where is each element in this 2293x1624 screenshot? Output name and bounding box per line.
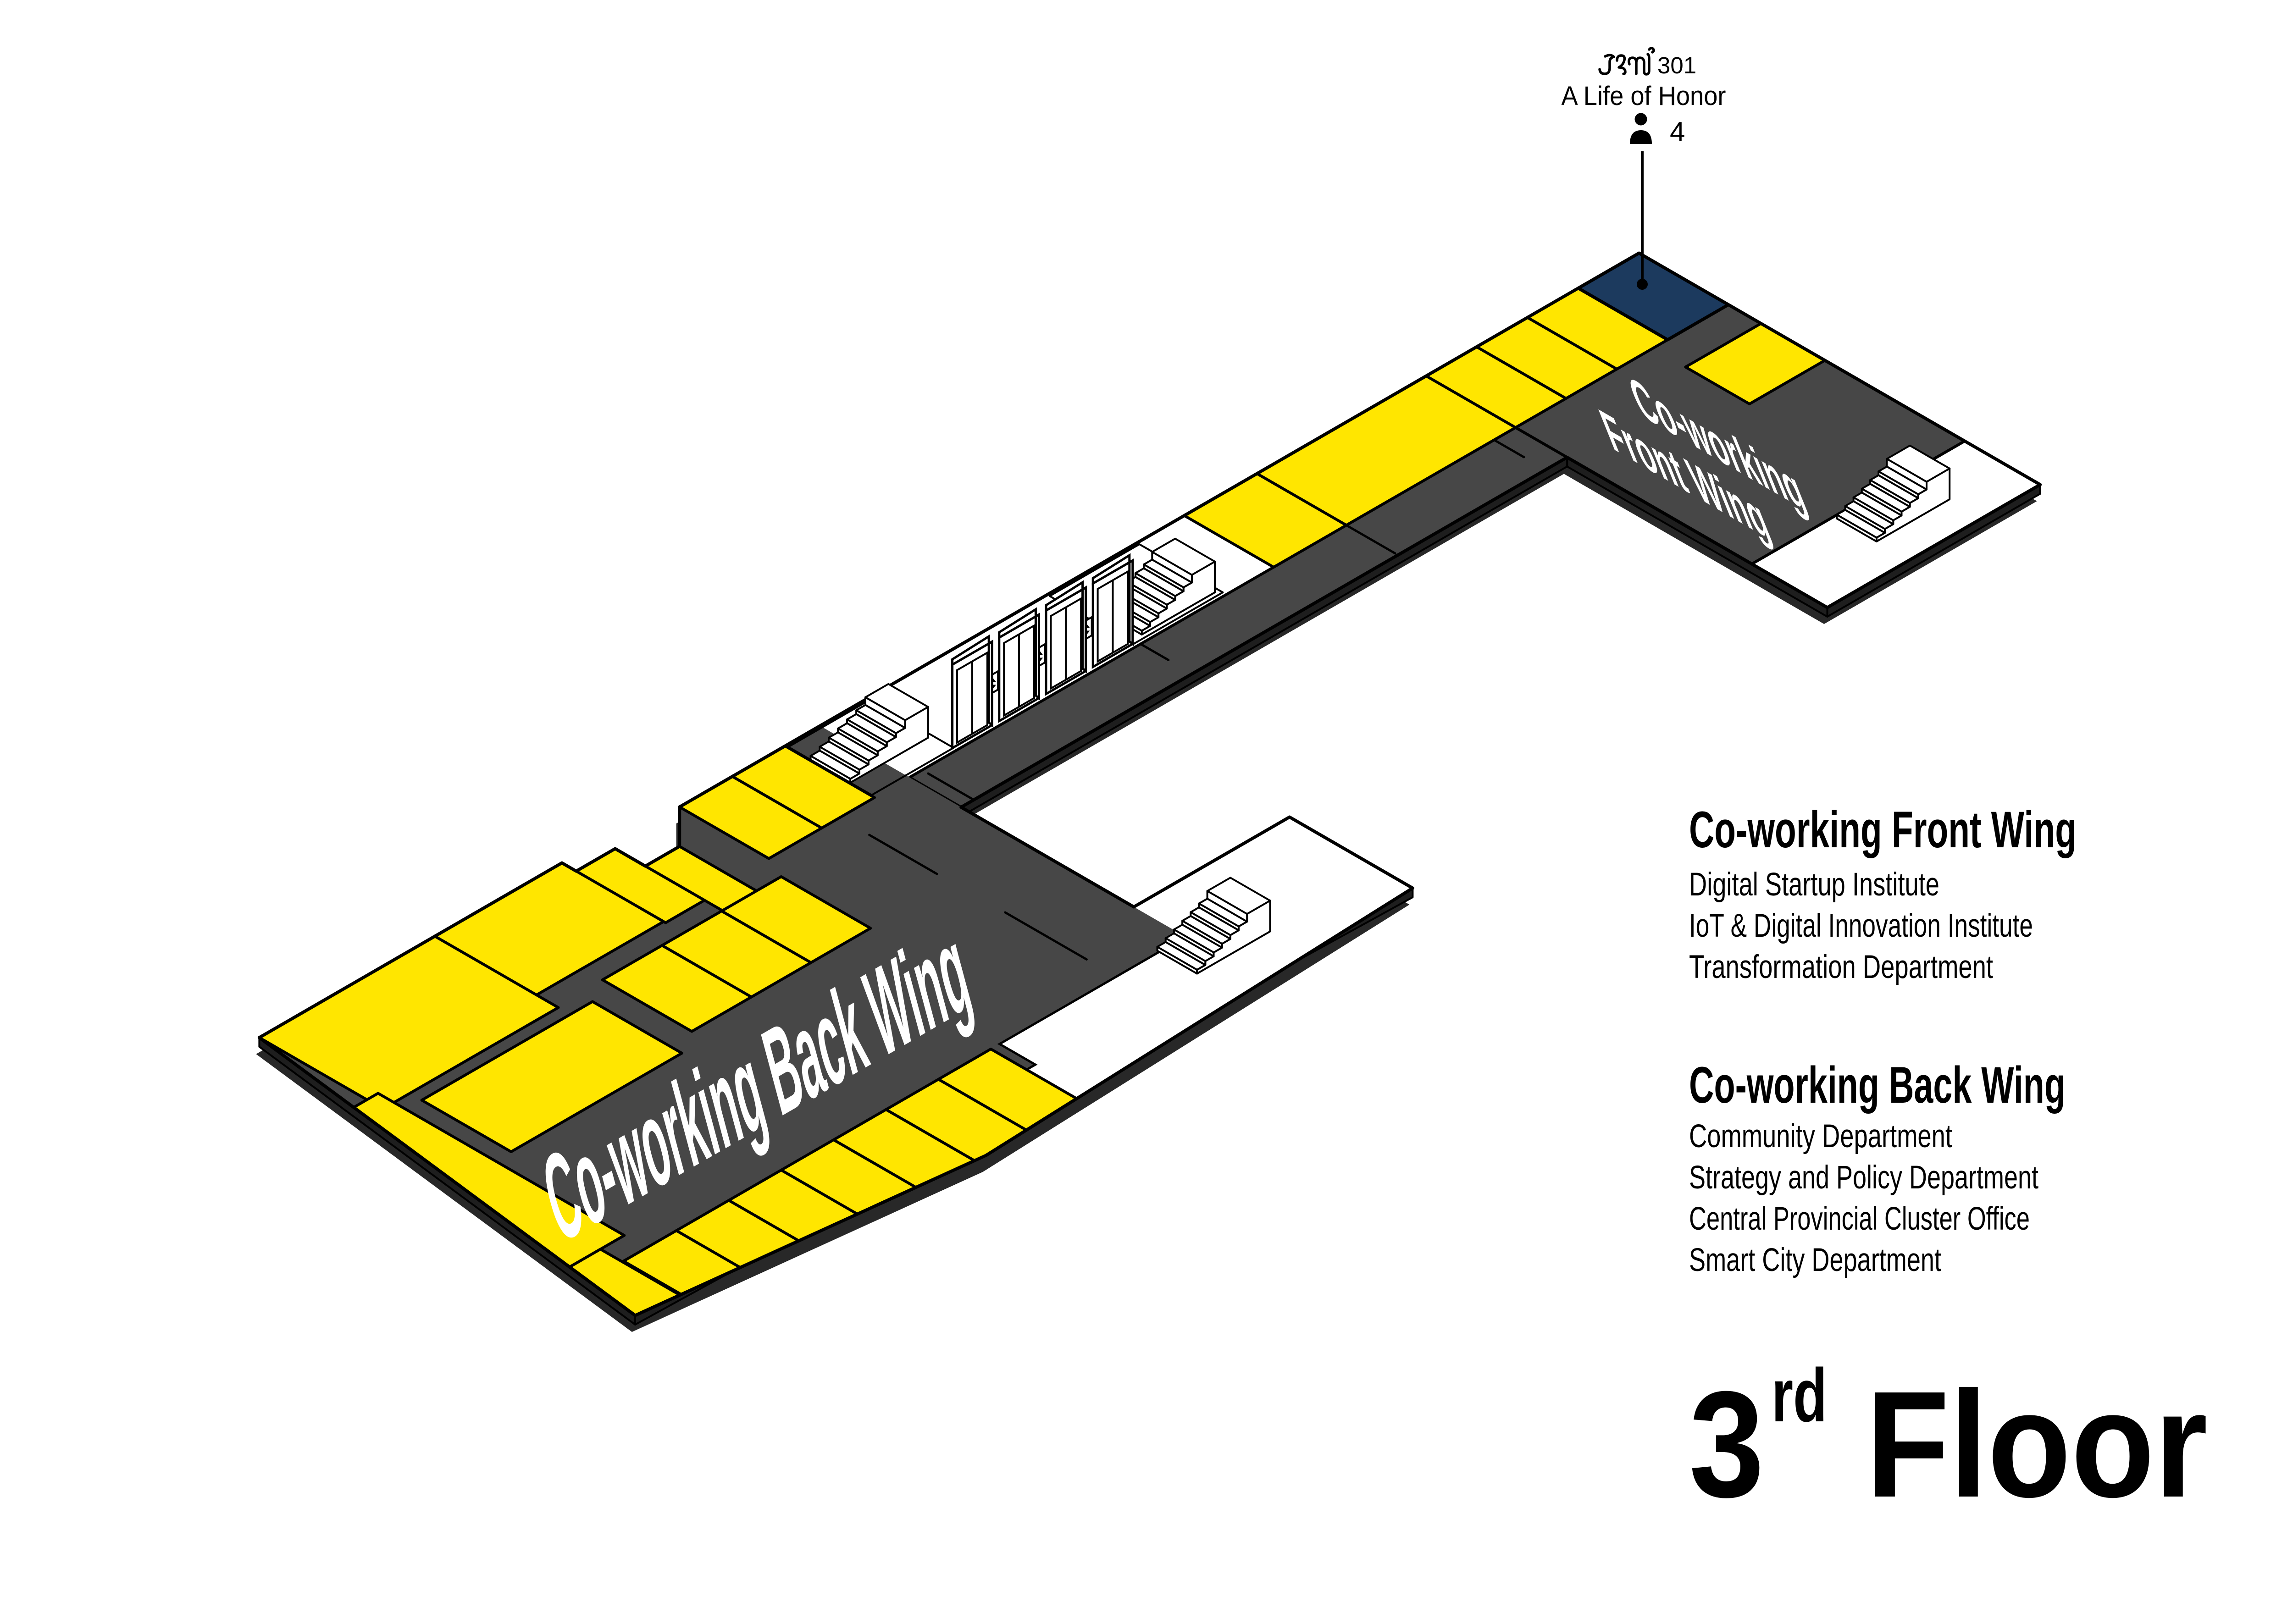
- svg-text:Community Department: Community Department: [1689, 1118, 1952, 1154]
- svg-text:Co-working Back Wing: Co-working Back Wing: [1689, 1056, 2066, 1114]
- svg-text:Strategy and Policy Department: Strategy and Policy Department: [1689, 1160, 2038, 1196]
- svg-text:3: 3: [1689, 1359, 1764, 1529]
- svg-text:rd: rd: [1772, 1353, 1827, 1437]
- svg-text:Central Provincial Cluster Off: Central Provincial Cluster Office: [1689, 1201, 2030, 1237]
- svg-text:A Life of Honor: A Life of Honor: [1562, 81, 1726, 111]
- svg-text:301: 301: [1657, 52, 1696, 78]
- svg-text:4: 4: [1670, 116, 1685, 147]
- svg-text:IoT & Digital Innovation Insti: IoT & Digital Innovation Institute: [1689, 908, 2033, 944]
- svg-text:Digital Startup Institute: Digital Startup Institute: [1689, 867, 1939, 903]
- svg-text:Transformation Department: Transformation Department: [1689, 949, 1993, 985]
- svg-text:Floor: Floor: [1866, 1359, 2208, 1529]
- svg-text:Smart City Department: Smart City Department: [1689, 1242, 1941, 1278]
- svg-text:Co-working Front Wing: Co-working Front Wing: [1689, 801, 2077, 858]
